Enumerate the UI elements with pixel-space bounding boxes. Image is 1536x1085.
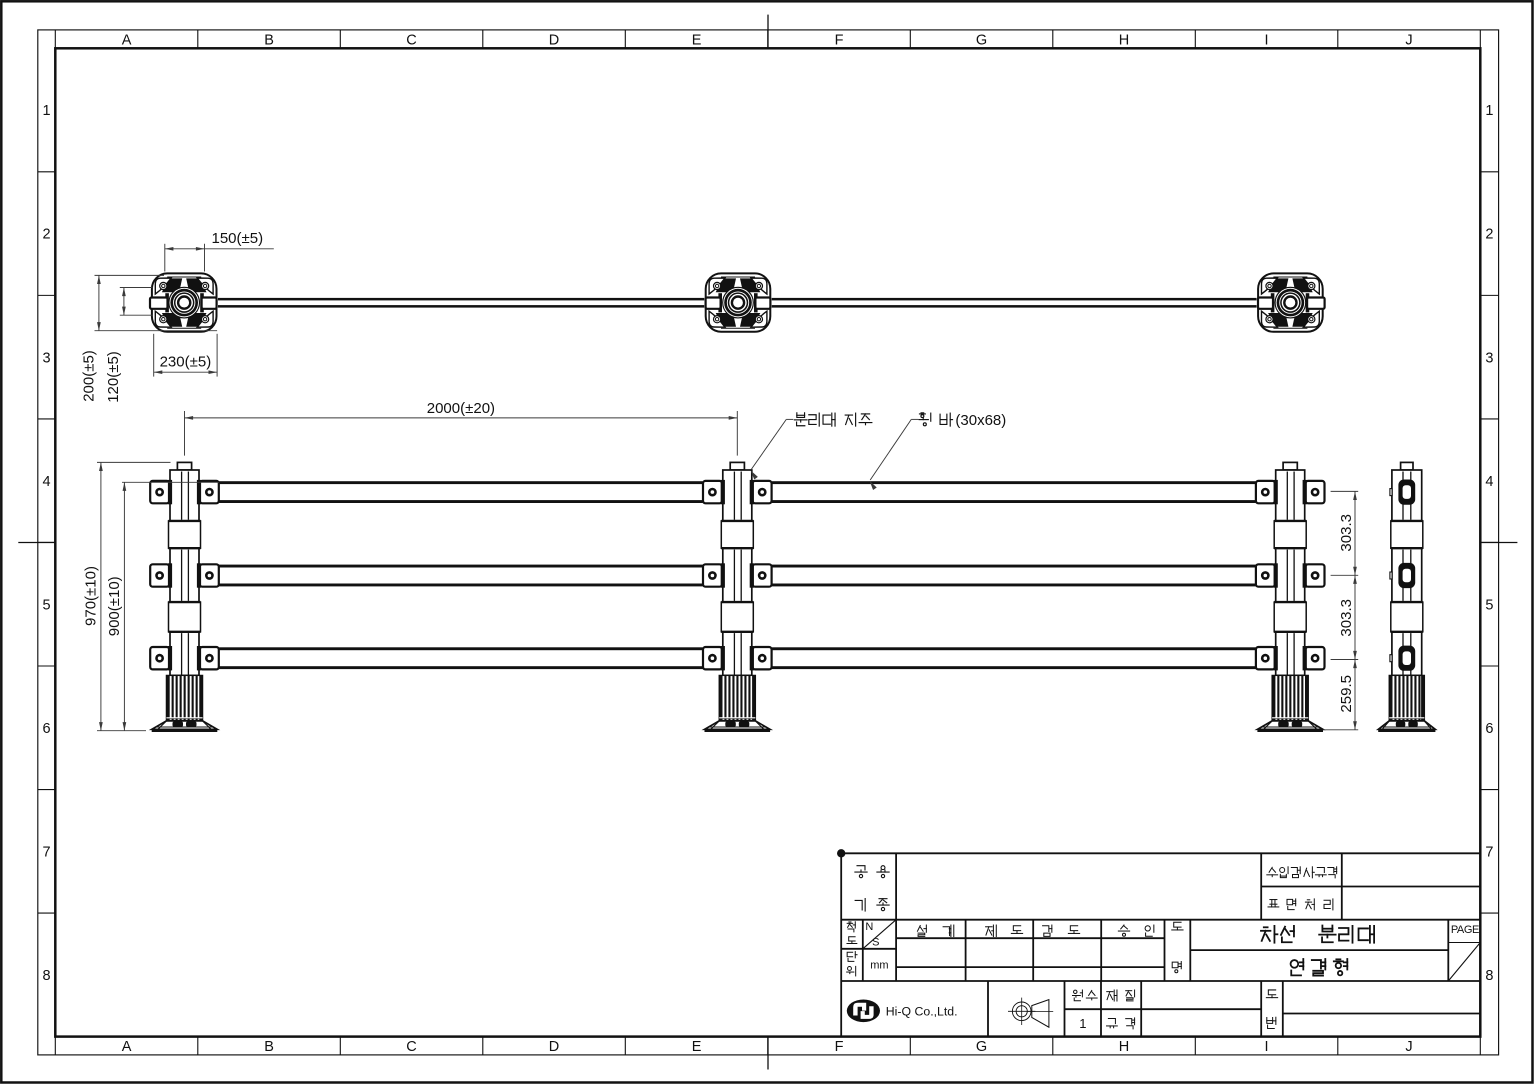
svg-text:7: 7 bbox=[1485, 844, 1493, 860]
svg-text:A: A bbox=[122, 32, 132, 48]
svg-text:C: C bbox=[406, 1039, 416, 1055]
svg-text:F: F bbox=[835, 32, 844, 48]
svg-text:5: 5 bbox=[42, 597, 50, 613]
svg-text:6: 6 bbox=[42, 721, 50, 737]
svg-text:G: G bbox=[976, 1039, 987, 1055]
svg-text:6: 6 bbox=[1485, 721, 1493, 737]
svg-text:4: 4 bbox=[1485, 474, 1493, 490]
svg-text:2000(±20): 2000(±20) bbox=[427, 400, 495, 417]
svg-text:S: S bbox=[872, 936, 879, 948]
svg-text:1: 1 bbox=[1485, 103, 1493, 119]
svg-text:150(±5): 150(±5) bbox=[212, 230, 264, 247]
svg-text:(30x68): (30x68) bbox=[955, 412, 1006, 429]
svg-text:8: 8 bbox=[1485, 968, 1493, 984]
svg-text:D: D bbox=[549, 32, 559, 48]
svg-text:2: 2 bbox=[1485, 227, 1493, 243]
svg-text:I: I bbox=[1265, 1039, 1269, 1055]
svg-text:E: E bbox=[692, 1039, 702, 1055]
svg-text:mm: mm bbox=[870, 959, 888, 971]
svg-text:900(±10): 900(±10) bbox=[106, 576, 123, 636]
svg-text:J: J bbox=[1405, 32, 1412, 48]
svg-text:303.3: 303.3 bbox=[1338, 599, 1355, 637]
svg-text:5: 5 bbox=[1485, 597, 1493, 613]
svg-text:3: 3 bbox=[42, 350, 50, 366]
svg-text:Hi-Q Co.,Ltd.: Hi-Q Co.,Ltd. bbox=[886, 1005, 958, 1019]
svg-text:3: 3 bbox=[1485, 350, 1493, 366]
svg-text:PAGE: PAGE bbox=[1451, 924, 1479, 936]
svg-text:259.5: 259.5 bbox=[1338, 675, 1355, 713]
svg-text:A: A bbox=[122, 1039, 132, 1055]
svg-text:J: J bbox=[1405, 1039, 1412, 1055]
svg-text:7: 7 bbox=[42, 844, 50, 860]
svg-text:E: E bbox=[692, 32, 702, 48]
svg-text:H: H bbox=[1119, 1039, 1129, 1055]
svg-text:1: 1 bbox=[42, 103, 50, 119]
svg-text:H: H bbox=[1119, 32, 1129, 48]
svg-text:D: D bbox=[549, 1039, 559, 1055]
svg-text:2: 2 bbox=[42, 227, 50, 243]
svg-text:B: B bbox=[264, 1039, 274, 1055]
svg-text:303.3: 303.3 bbox=[1338, 514, 1355, 552]
svg-text:200(±5): 200(±5) bbox=[81, 350, 98, 402]
svg-text:I: I bbox=[1265, 32, 1269, 48]
svg-text:F: F bbox=[835, 1039, 844, 1055]
svg-text:970(±10): 970(±10) bbox=[82, 566, 99, 626]
svg-text:N: N bbox=[865, 921, 873, 933]
svg-text:1: 1 bbox=[1079, 1016, 1086, 1031]
svg-text:120(±5): 120(±5) bbox=[105, 351, 122, 403]
svg-text:230(±5): 230(±5) bbox=[160, 354, 212, 371]
svg-text:G: G bbox=[976, 32, 987, 48]
svg-text:8: 8 bbox=[42, 968, 50, 984]
svg-text:B: B bbox=[264, 32, 274, 48]
svg-text:4: 4 bbox=[42, 474, 50, 490]
svg-text:C: C bbox=[406, 32, 416, 48]
